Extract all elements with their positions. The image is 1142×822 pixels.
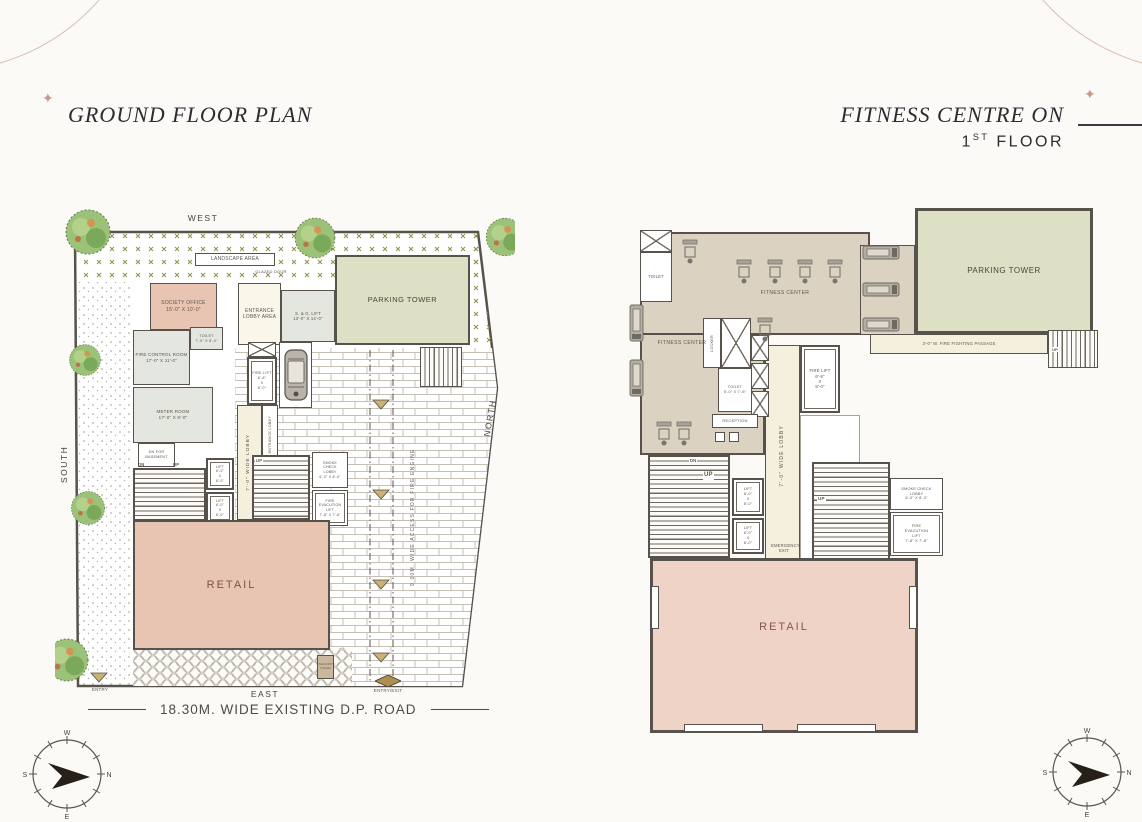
lift-dim: 8'-0": [216, 469, 224, 473]
room-label: SMOKE CHECK LOBBY: [901, 487, 931, 496]
tree-icon: [295, 218, 335, 258]
landscape-area-tag: LANDSCAPE AREA: [195, 253, 275, 266]
lift-dim: X: [747, 536, 750, 540]
fire-lift-shaft: FIRE LIFT6'-8"X8'-0": [800, 345, 840, 413]
lift-dim: 8'-0": [216, 503, 224, 507]
lift-dim: 7'-8" X 7'-8": [319, 513, 340, 517]
floor-number: 1: [962, 133, 973, 150]
stair-dn-label: DN: [138, 462, 144, 467]
window: [797, 724, 876, 732]
room-label: RETAIL: [207, 578, 257, 592]
shaft-icon: [248, 342, 276, 357]
fitness-hall: [640, 232, 870, 335]
shaft-icon: [751, 363, 769, 389]
lift-label: LIFT: [216, 499, 224, 503]
room-label: ENTRANCE LOBBY AREA: [239, 308, 280, 321]
compass-w: W: [1084, 728, 1091, 735]
stair-dn-label: DN: [689, 458, 697, 463]
lift-dim: 8'-0": [744, 492, 753, 496]
stairs: [133, 468, 206, 521]
lift-dim: 8'-0": [744, 531, 753, 535]
room-entrance-lobby-area: ENTRANCE LOBBY AREA: [238, 283, 281, 345]
room-label: PARKING TOWER: [967, 266, 1041, 276]
room-label: FIRE CONTROL ROOM: [136, 352, 188, 357]
lift-dim: 8'-0": [216, 479, 224, 483]
stairs: [648, 455, 730, 558]
room-label: METER ROOM: [157, 409, 190, 414]
floor-ordinal: ST: [973, 132, 990, 142]
room-parking-tower: PARKING TOWER: [335, 255, 470, 345]
fitness-center-label: FITNESS CENTER: [745, 290, 825, 297]
lift-label: FIRE LIFT: [252, 371, 271, 375]
direction-west: WEST: [173, 213, 233, 223]
lift-label: FIRE EVACUTION LIFT: [905, 524, 929, 538]
compass-n: N: [106, 772, 111, 779]
lift-shaft: LIFT8'-0"X8'-0": [732, 518, 764, 554]
compass-icon: W S N E: [12, 728, 122, 820]
room-label: S. & G. LIFT: [295, 311, 321, 316]
room-label: SMOKE CHECK LOBBY: [323, 461, 337, 474]
ground-floor-plan: FIRE CONTROL ROOM17'-0" X 11'-0" METER R…: [55, 205, 515, 735]
star-ornament-icon: ✦: [1084, 86, 1096, 103]
stairs: [812, 462, 890, 560]
lift-dim: 8'-0": [216, 513, 224, 517]
fire-evacuation-lift: FIRE EVACUTION LIFT7'-8" X 7'-8": [890, 512, 943, 556]
brochure-page: ✦ ✦ GROUND FLOOR PLAN FITNESS CENTRE ON …: [0, 0, 1142, 822]
title-rule: [1078, 124, 1142, 126]
security-niche: SECURITY NICHE: [317, 655, 334, 679]
room-meter: METER ROOM17'-0" X 8'-0": [133, 387, 213, 443]
direction-south: SOUTH: [59, 427, 69, 483]
glazed-door-label: GLAZED DOOR: [241, 269, 301, 274]
compass-needle: [1068, 761, 1110, 787]
room-label: PARKING TOWER: [368, 295, 437, 305]
lift-dim: X: [747, 497, 750, 501]
room-toilet2: TOILET5'-0" X 7'-6": [718, 368, 752, 412]
fire-passage: 3'-0" W. FIRE FIGHTING PASSAGE: [870, 334, 1048, 354]
shaft-icon: [721, 318, 751, 368]
window: [684, 724, 763, 732]
stair-up-label: UP: [817, 496, 826, 502]
room-sg-lift: S. & G. LIFT13'-0" X 14'-0": [281, 290, 335, 342]
road-text: 18.30M. WIDE EXISTING D.P. ROAD: [160, 702, 417, 717]
room-dim: 5'-0" X 7'-6": [724, 390, 746, 394]
road-label: 18.30M. WIDE EXISTING D.P. ROAD: [88, 702, 489, 717]
stair-up-label: UP: [703, 472, 714, 480]
room-label: TOILET: [199, 334, 213, 338]
ground-floor-title: GROUND FLOOR PLAN: [68, 102, 312, 128]
star-ornament-icon: ✦: [42, 90, 54, 107]
room-label: RECEPTION: [722, 418, 747, 423]
compass-needle: [48, 763, 90, 789]
lift-label: LIFT: [744, 526, 753, 530]
compass-n: N: [1126, 770, 1131, 777]
room-label: LANDSCAPE AREA: [211, 256, 259, 263]
lift-dim: X: [219, 508, 222, 512]
lift-shaft: LIFT8'-0"X8'-0": [206, 458, 234, 490]
room-label: TOILET: [648, 274, 664, 279]
room-dim: 17'-0" X 11'-0": [146, 358, 177, 363]
fitness-center-label: FITNESS CENTER: [647, 340, 717, 347]
stair-up-label: UP: [173, 462, 179, 467]
tree-icon: [486, 218, 515, 255]
room-label: SOCIETY OFFICE: [161, 300, 205, 306]
seat-icon: [715, 432, 725, 442]
compass-s: S: [1043, 770, 1048, 777]
gravel-strip: [77, 282, 133, 686]
window: [651, 586, 659, 628]
lift-label: FIRE EVACUTION LIFT: [319, 499, 342, 512]
entry-exit-label: ENTRY/EXIT: [368, 688, 408, 694]
stairs: [252, 455, 310, 520]
lift-dim: 8'-0": [815, 384, 824, 389]
tree-icon: [66, 210, 110, 254]
room-label: DN FOR BASEMENT: [139, 450, 174, 460]
stair-up-label: UP: [1051, 347, 1059, 352]
room-label: SECURITY NICHE: [319, 663, 333, 671]
entry-label: ENTRY: [85, 687, 115, 693]
fire-engine-access-label: 9.00M. WIDE ACCESS FOR FIRE ENGINE: [410, 420, 417, 615]
room-retail: RETAIL: [650, 558, 918, 733]
room-society-office: SOCIETY OFFICE15'-0" X 10'-0": [150, 283, 217, 330]
first-floor-plan: PARKING TOWER 3'-0" W. FIRE FIGHTING PAS…: [625, 200, 1120, 750]
lift-label: LIFT: [216, 465, 224, 469]
room-retail: RETAIL: [133, 520, 330, 650]
room-label: RETAIL: [759, 620, 809, 634]
compass-w: W: [64, 730, 71, 737]
corridor-label: 7'-0" WIDE LOBBY: [779, 425, 786, 487]
room-parking-tower: PARKING TOWER: [915, 208, 1093, 334]
tree-icon: [70, 345, 101, 376]
fitness-connector: [860, 245, 915, 335]
room-dim: 17'-0" X 8'-0": [159, 415, 188, 420]
window: [909, 586, 917, 628]
room-dim: 7'-0" X 8'-0": [195, 339, 217, 343]
room-fire-control: FIRE CONTROL ROOM17'-0" X 11'-0": [133, 330, 190, 385]
lift-dim: 6'-8": [815, 374, 824, 379]
lift-dim: 7'-8" X 7'-8": [905, 539, 927, 543]
car-icon: [282, 347, 310, 403]
emergency-exit-label: EMERGENCY EXIT: [771, 543, 797, 554]
seat-icon: [729, 432, 739, 442]
lift-dim: 8'-0": [744, 502, 753, 506]
room-toilet: TOILET: [640, 252, 672, 302]
lift-label: FIRE LIFT: [809, 368, 830, 373]
shaft-icon: [751, 335, 769, 361]
entry-exit-diamond-icon: [375, 675, 401, 687]
lift-dim: 8'-0": [744, 541, 753, 545]
compass-e: E: [1085, 812, 1090, 818]
room-toilet: TOILET7'-0" X 8'-0": [190, 327, 223, 350]
compass-icon: W S N E: [1032, 726, 1142, 818]
road-dash: [431, 709, 489, 711]
smoke-check-lobby: SMOKE CHECK LOBBY6'-0" X 8'-0": [312, 452, 348, 488]
corner-arc-icon: [0, 0, 152, 72]
fire-lift-shaft: FIRE LIFT6'-8"X8'-0": [247, 357, 277, 405]
room-label: 3'-0" W. FIRE FIGHTING PASSAGE: [922, 341, 995, 346]
lift-dim: 6'-8": [258, 376, 267, 380]
lift-dim: 8'-0": [258, 386, 267, 390]
shaft-icon: [640, 230, 672, 252]
first-floor-subtitle: 1ST FLOOR: [962, 132, 1064, 151]
lobby-corridor: 7'-0" WIDE LOBBY: [765, 345, 800, 567]
road-dash: [88, 709, 146, 711]
tree-icon: [72, 492, 105, 525]
direction-east: EAST: [235, 689, 295, 699]
smoke-check-lobby: SMOKE CHECK LOBBY6'-0" X 8'-0": [890, 478, 943, 510]
lift-dim: X: [219, 474, 222, 478]
lift-dim: X: [261, 381, 264, 385]
corner-arc-icon: [990, 0, 1142, 72]
lift-dim: X: [819, 379, 822, 384]
lift-label: LIFT: [744, 487, 753, 491]
compass-e: E: [65, 814, 70, 820]
first-floor-title: FITNESS CENTRE ON: [840, 102, 1064, 128]
lift-shaft: LIFT8'-0"X8'-0": [732, 478, 764, 516]
floor-word: FLOOR: [989, 133, 1064, 150]
stair-up-label: UP: [255, 458, 263, 463]
stairs: [420, 347, 462, 387]
room-dim: 6'-0" X 8'-0": [319, 475, 340, 479]
room-dim: 15'-0" X 10'-0": [166, 307, 201, 313]
room-dim: 6'-0" X 8'-0": [905, 496, 927, 500]
room-dim: 13'-0" X 14'-0": [293, 316, 322, 321]
reception-desk: RECEPTION: [712, 414, 758, 428]
corridor-label: ENTRANCE LOBBY: [268, 416, 273, 453]
car-lift-bay: [279, 342, 312, 408]
compass-s: S: [23, 772, 28, 779]
room-label: TOILET: [728, 385, 742, 389]
